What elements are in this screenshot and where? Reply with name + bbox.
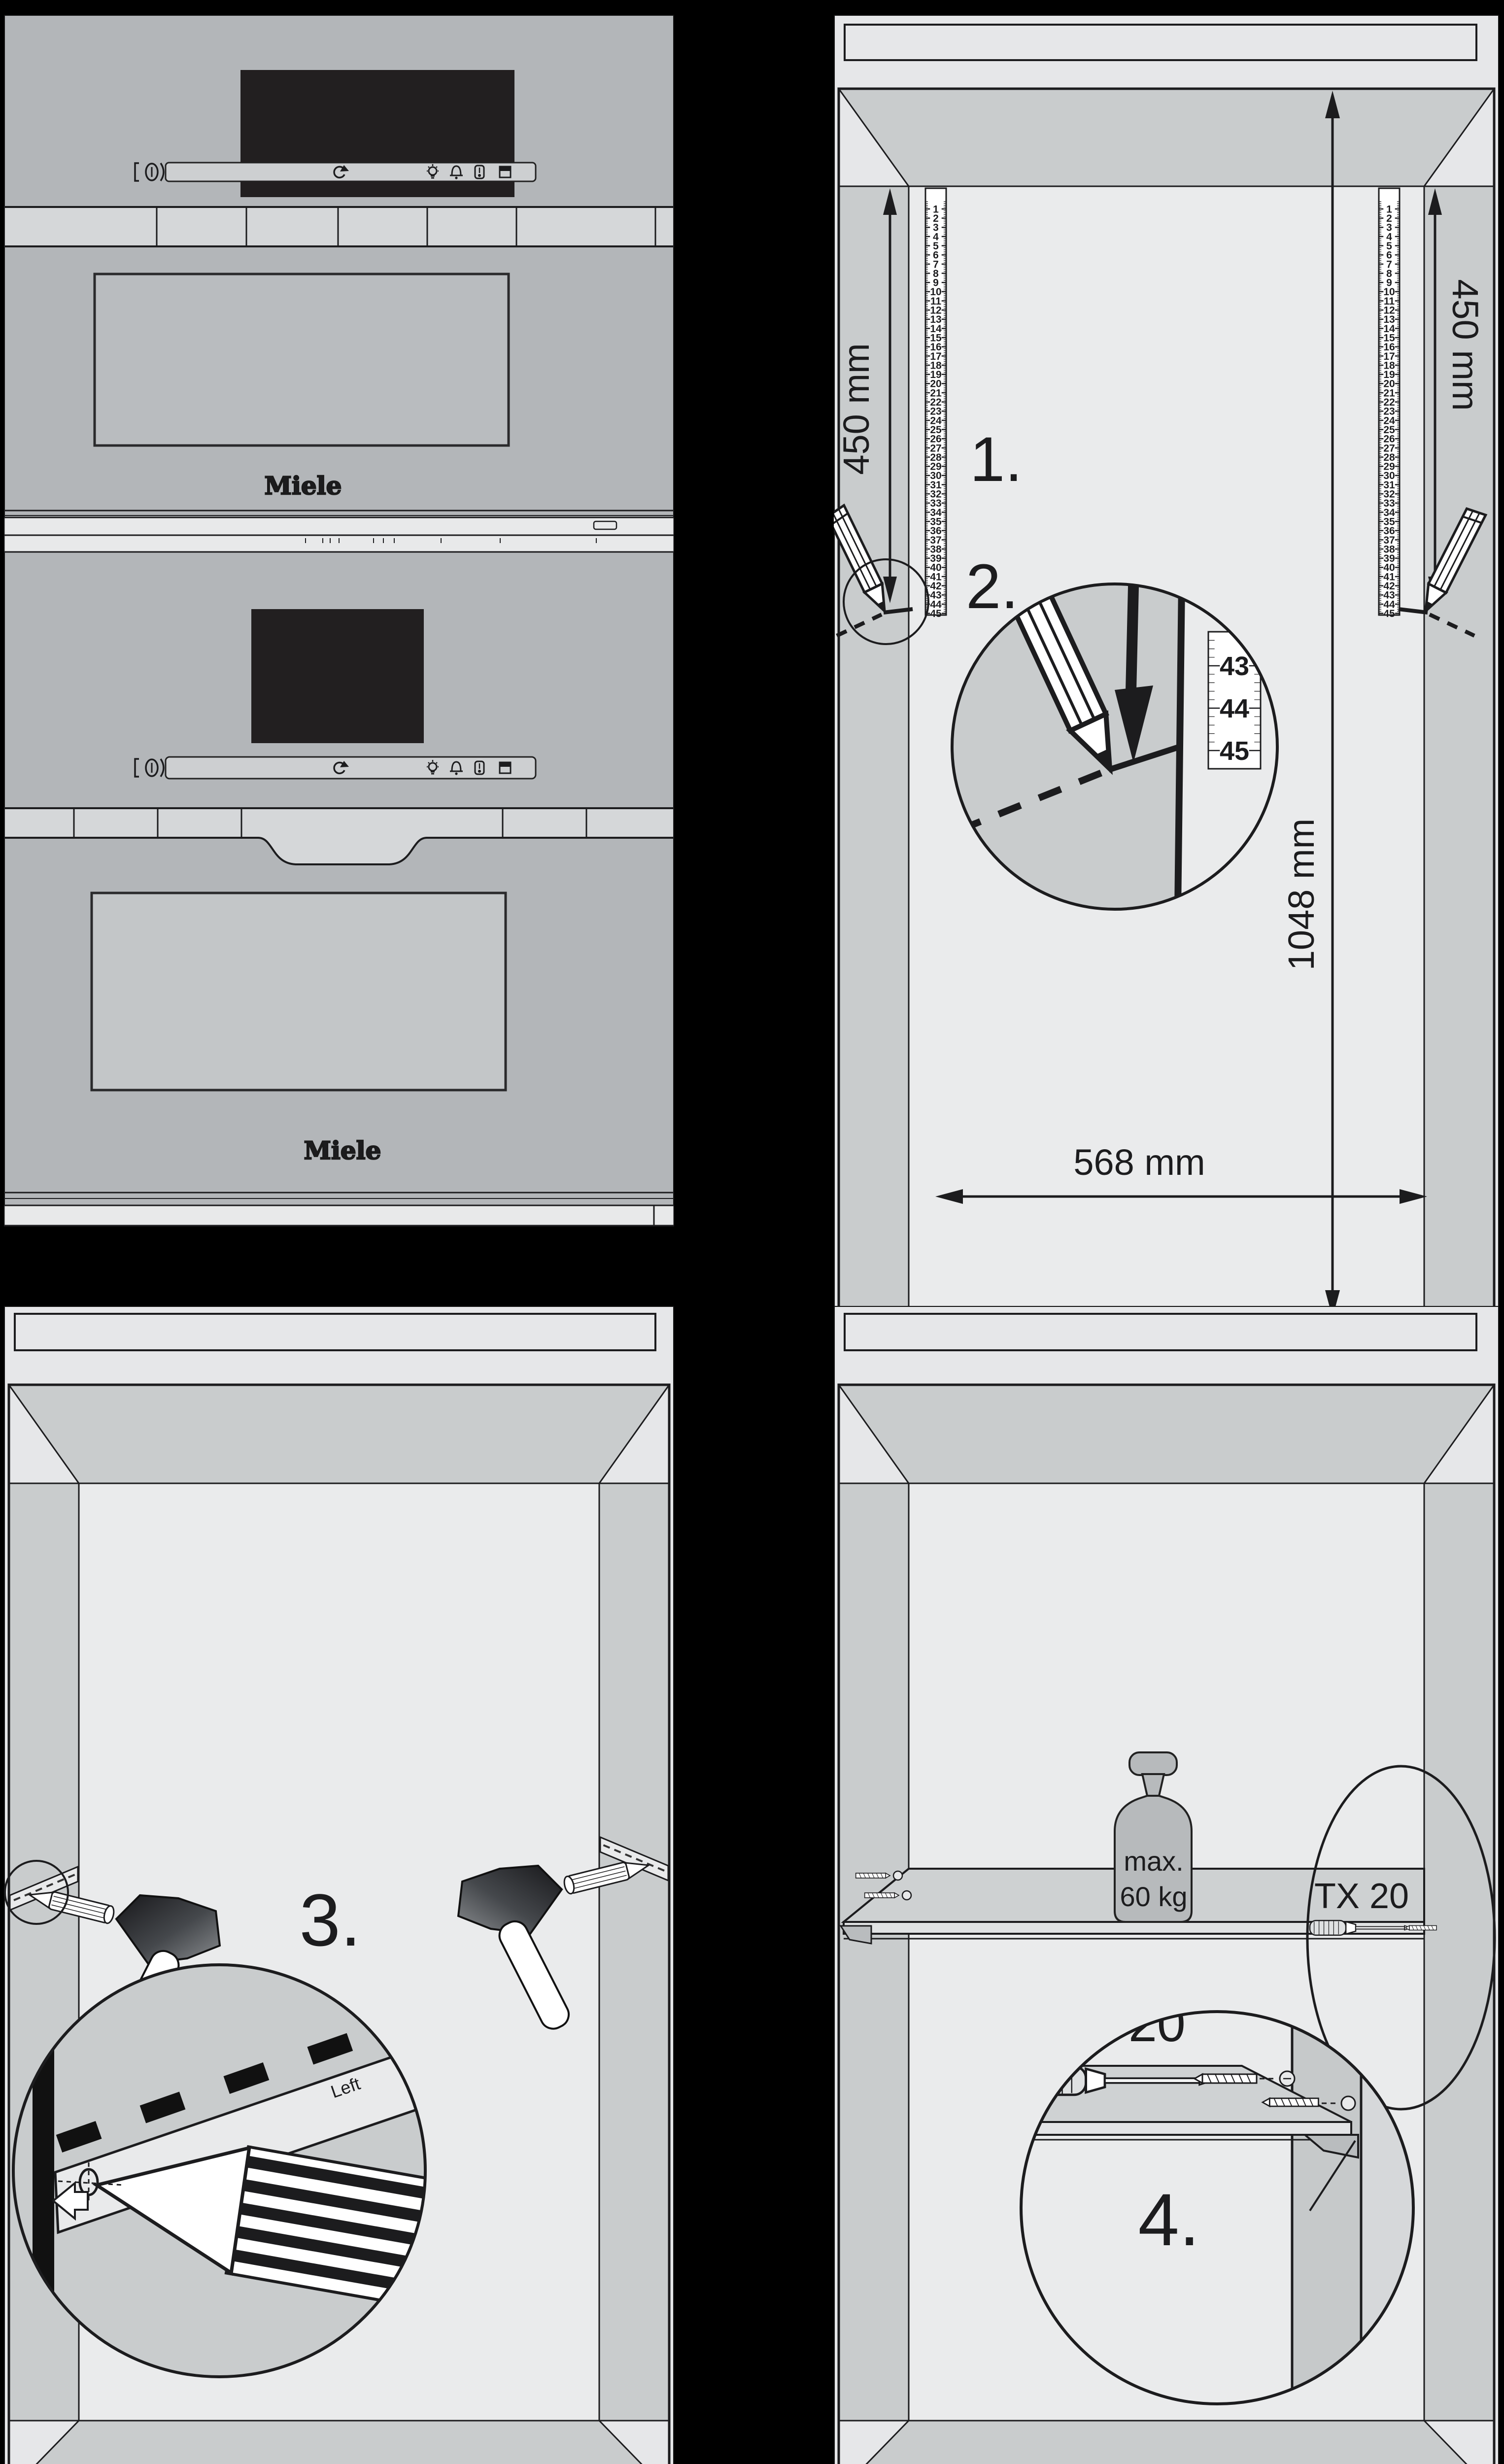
svg-text:max.: max. — [1124, 1846, 1183, 1877]
cabinet-left-wall — [839, 1483, 909, 2421]
cabinet-top-bar — [845, 25, 1476, 60]
step-1-label: 1. — [970, 424, 1023, 495]
svg-text:45: 45 — [1383, 608, 1395, 619]
svg-text:450 mm: 450 mm — [836, 343, 877, 475]
oven-plinth — [4, 1205, 674, 1226]
upper-oven-handle[interactable] — [4, 207, 674, 246]
lower-oven-control-strip[interactable] — [166, 757, 536, 779]
svg-text:1048 mm: 1048 mm — [1281, 819, 1322, 970]
cabinet-floor — [839, 2421, 1494, 2464]
svg-text:45: 45 — [1220, 736, 1249, 766]
lower-oven-door-window — [92, 893, 506, 1090]
cabinet-top-bar — [845, 1314, 1476, 1350]
cabinet-floor — [9, 2421, 669, 2464]
measuring-tape-right: 1234567891011121314151617181920212223242… — [1379, 188, 1400, 619]
panel-step-3-hammer-pins: 3. Left — [4, 1306, 674, 2464]
brand-logo-lower: Miele — [304, 1136, 381, 1165]
step-2-label: 2. — [966, 551, 1019, 622]
svg-text:45: 45 — [930, 608, 942, 619]
cabinet-ceiling — [9, 1385, 669, 1483]
torx-size-label: TX 20 — [1314, 1877, 1409, 1916]
lower-oven-display[interactable] — [251, 609, 424, 743]
installation-diagram: Miele Miele — [0, 0, 1504, 2464]
svg-text:450 mm: 450 mm — [1445, 279, 1486, 411]
cabinet-top-bar — [15, 1314, 655, 1350]
panel-ovens: Miele Miele — [4, 15, 674, 1227]
svg-text:60 kg: 60 kg — [1120, 1881, 1188, 1912]
upper-oven-door-window — [95, 274, 509, 445]
cabinet-ceiling — [839, 89, 1494, 186]
step-3-label: 3. — [299, 1879, 361, 1961]
cabinet-right-wall — [599, 1483, 669, 2421]
panel-step-1-2-measure: 1234567891011121314151617181920212223242… — [834, 15, 1499, 1412]
svg-text:44: 44 — [1220, 694, 1249, 723]
brand-logo-upper: Miele — [265, 471, 342, 500]
cabinet-right-wall — [1424, 1483, 1494, 2421]
oven-gap-band — [4, 517, 674, 552]
svg-text:43: 43 — [1220, 651, 1249, 681]
cabinet-ceiling — [839, 1385, 1494, 1483]
svg-text:568 mm: 568 mm — [1073, 1142, 1205, 1183]
panel-step-4-shelf: max. 60 kg TX 20 TX — [834, 1306, 1499, 2464]
measuring-tape-left: 1234567891011121314151617181920212223242… — [925, 188, 946, 619]
step-4-label: 4. — [1138, 2178, 1199, 2261]
